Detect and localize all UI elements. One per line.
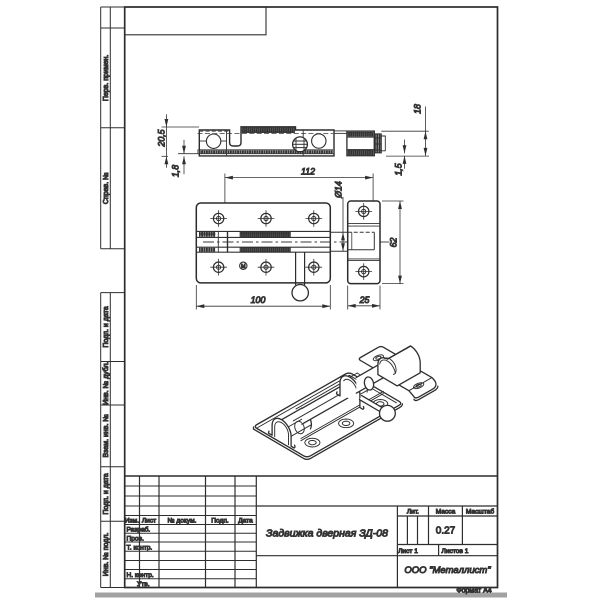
svg-text:20,5: 20,5 <box>157 129 167 147</box>
svg-text:Листов 1: Листов 1 <box>442 548 469 555</box>
svg-text:Взам. инв. №: Взам. инв. № <box>103 414 110 457</box>
svg-text:Подп. и дата: Подп. и дата <box>103 473 110 514</box>
svg-text:62: 62 <box>389 238 399 248</box>
svg-text:Инв. № подл.: Инв. № подл. <box>103 533 110 577</box>
svg-text:Задвижка дверная ЗД-08: Задвижка дверная ЗД-08 <box>266 528 388 540</box>
svg-text:Т. контр.: Т. контр. <box>127 545 153 552</box>
svg-text:0.27: 0.27 <box>436 526 456 537</box>
svg-text:25: 25 <box>359 295 370 305</box>
svg-text:Разраб.: Разраб. <box>127 526 151 534</box>
svg-text:18: 18 <box>413 104 423 114</box>
svg-text:Справ. №: Справ. № <box>103 172 110 204</box>
svg-text:ООО "Металлист": ООО "Металлист" <box>404 565 491 576</box>
svg-text:Утв.: Утв. <box>137 581 150 588</box>
svg-text:1,5: 1,5 <box>394 163 404 175</box>
svg-text:1,8: 1,8 <box>171 165 181 177</box>
svg-text:112: 112 <box>301 166 315 176</box>
svg-text:Подп. и дата: Подп. и дата <box>103 306 110 347</box>
svg-text:Дата: Дата <box>238 517 253 524</box>
svg-text:Н. контр.: Н. контр. <box>127 572 154 579</box>
svg-text:Инв. № дубл.: Инв. № дубл. <box>102 361 110 404</box>
svg-text:100: 100 <box>251 295 266 305</box>
svg-text:Изм.: Изм. <box>125 517 139 524</box>
svg-text:Масштаб: Масштаб <box>466 507 494 515</box>
svg-text:Лист: Лист <box>142 517 156 524</box>
svg-text:Масса: Масса <box>436 508 456 515</box>
svg-text:Перв. примен.: Перв. примен. <box>103 55 110 102</box>
svg-text:Лит.: Лит. <box>407 508 419 515</box>
svg-text:Пров.: Пров. <box>127 535 145 542</box>
svg-text:Подп.: Подп. <box>211 517 229 524</box>
svg-text:№ докум.: № докум. <box>168 517 197 524</box>
svg-text:Ø14: Ø14 <box>334 181 344 199</box>
svg-text:M: M <box>241 264 245 270</box>
svg-text:Лист 1: Лист 1 <box>398 548 418 555</box>
svg-text:Формат А4: Формат А4 <box>456 588 491 595</box>
